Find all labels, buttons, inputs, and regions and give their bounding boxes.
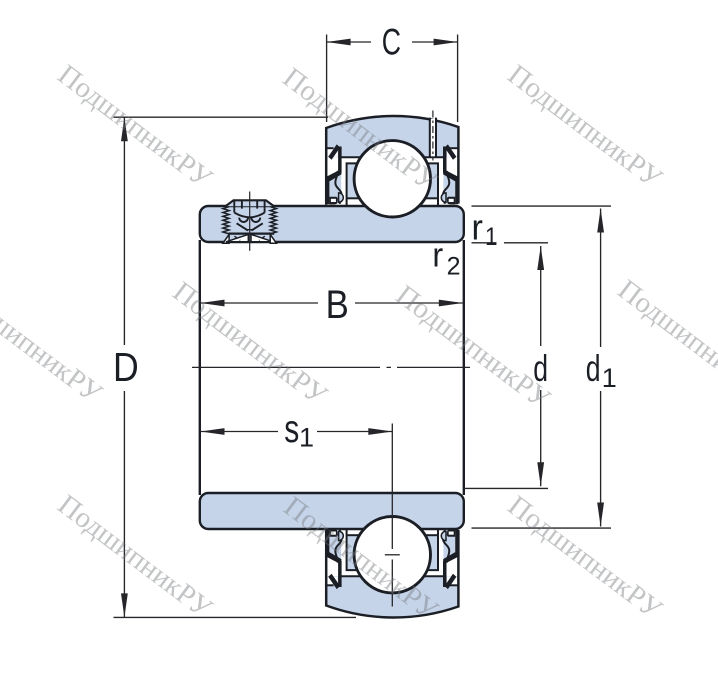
svg-text:2: 2 — [447, 253, 461, 281]
svg-text:r: r — [432, 237, 443, 275]
svg-text:D: D — [113, 345, 139, 391]
svg-text:r: r — [472, 208, 484, 248]
svg-text:1: 1 — [299, 422, 314, 452]
svg-text:B: B — [326, 282, 349, 327]
svg-text:s: s — [284, 407, 299, 451]
svg-text:1: 1 — [602, 363, 617, 393]
svg-text:d: d — [586, 348, 601, 389]
svg-text:1: 1 — [485, 223, 498, 251]
svg-text:C: C — [382, 21, 401, 62]
